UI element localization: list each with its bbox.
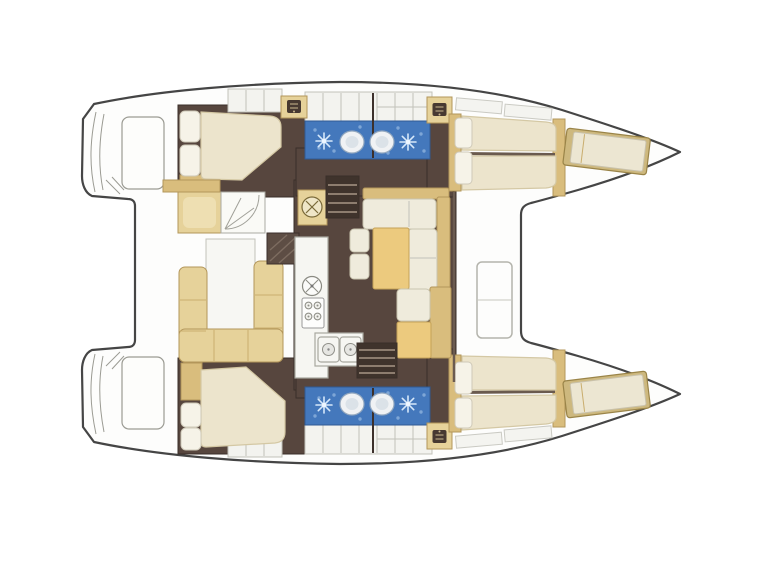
companionway-steps-port (326, 176, 359, 218)
nav-desk (397, 322, 431, 358)
sink-icon (287, 100, 301, 113)
pillow (181, 428, 201, 450)
stool (350, 254, 369, 279)
catamaran-floor-plan (0, 0, 768, 576)
pillow (180, 111, 200, 142)
sink-icon (318, 337, 339, 362)
helm-seat (178, 192, 221, 233)
cockpit-side-seat (163, 180, 220, 192)
dinette-table (373, 228, 409, 289)
round-sink-icon (303, 277, 322, 296)
stool (350, 229, 369, 252)
salon (295, 176, 454, 382)
nav-seat-cushion (397, 289, 430, 321)
companionway-steps-starboard (357, 343, 397, 378)
pillow (181, 403, 201, 427)
dinette-backrest (437, 197, 450, 292)
hull-window-strip (228, 89, 282, 112)
cabin-cabinet (181, 363, 202, 400)
floor-plan-canvas (0, 0, 768, 576)
cockpit-table (206, 239, 255, 332)
galley-cabinet (298, 190, 327, 225)
stove-icon (302, 298, 324, 328)
vanity-cabinet (281, 96, 307, 118)
dinette-cushion (408, 229, 437, 290)
pillow (180, 145, 200, 176)
dinette-backrest (363, 188, 449, 199)
locker-door-swing (221, 192, 265, 233)
dinette-cushion (363, 199, 436, 229)
salon-entry-steps (267, 233, 299, 264)
nav-seat-back (430, 287, 451, 358)
